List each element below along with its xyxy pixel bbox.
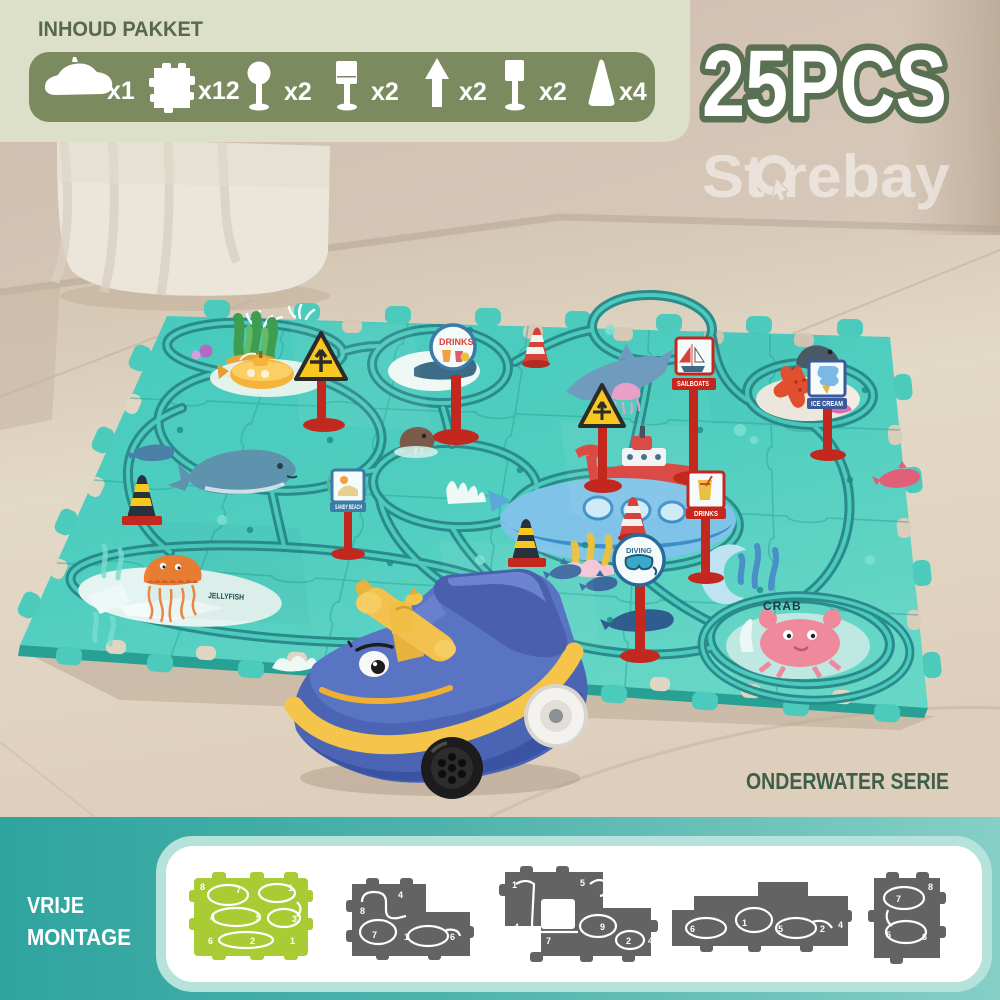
svg-text:7: 7 <box>236 885 241 895</box>
svg-text:MONTAGE: MONTAGE <box>27 924 131 950</box>
svg-text:6: 6 <box>208 936 213 946</box>
svg-text:5: 5 <box>256 913 261 923</box>
svg-text:DRINKS: DRINKS <box>694 509 718 518</box>
svg-text:1: 1 <box>288 883 293 893</box>
svg-text:ONDERWATER SERIE: ONDERWATER SERIE <box>746 768 949 794</box>
svg-text:1: 1 <box>742 918 747 928</box>
svg-text:4: 4 <box>210 913 215 923</box>
svg-text:8: 8 <box>928 882 933 892</box>
svg-text:CRAB: CRAB <box>763 599 802 613</box>
svg-text:3: 3 <box>292 914 297 924</box>
svg-text:4: 4 <box>838 920 843 930</box>
svg-text:4: 4 <box>514 922 519 932</box>
svg-text:4: 4 <box>648 936 653 946</box>
svg-text:1: 1 <box>404 932 409 942</box>
svg-text:8: 8 <box>200 882 205 892</box>
svg-text:5: 5 <box>778 924 783 934</box>
svg-text:DIVING: DIVING <box>626 546 652 555</box>
svg-text:6: 6 <box>690 924 695 934</box>
svg-text:4: 4 <box>398 890 403 900</box>
svg-text:2: 2 <box>820 924 825 934</box>
svg-text:6: 6 <box>922 932 927 942</box>
svg-text:DRINKS: DRINKS <box>439 337 474 347</box>
svg-text:x2: x2 <box>539 78 567 106</box>
svg-text:5: 5 <box>886 930 891 940</box>
svg-text:1: 1 <box>290 936 295 946</box>
svg-text:VRIJE: VRIJE <box>27 892 84 918</box>
svg-text:25PCS: 25PCS <box>702 31 947 137</box>
svg-text:x12: x12 <box>198 77 240 105</box>
svg-text:2: 2 <box>626 936 631 946</box>
svg-text:5: 5 <box>580 878 585 888</box>
svg-text:x4: x4 <box>619 78 647 106</box>
svg-text:7: 7 <box>372 930 377 940</box>
svg-text:7: 7 <box>546 936 551 946</box>
svg-text:x2: x2 <box>371 78 399 106</box>
svg-text:2: 2 <box>250 936 255 946</box>
svg-text:7: 7 <box>896 894 901 904</box>
svg-text:x1: x1 <box>107 77 135 105</box>
svg-text:6: 6 <box>450 932 455 942</box>
svg-text:St rebay: St rebay <box>702 143 951 210</box>
svg-text:x2: x2 <box>459 78 487 106</box>
svg-text:INHOUD PAKKET: INHOUD PAKKET <box>38 18 203 41</box>
svg-text:SAILBOATS: SAILBOATS <box>677 381 709 388</box>
svg-text:8: 8 <box>360 906 365 916</box>
svg-text:9: 9 <box>600 922 605 932</box>
svg-text:1: 1 <box>512 880 517 890</box>
svg-text:x2: x2 <box>284 78 312 106</box>
svg-text:SANDY BEACH: SANDY BEACH <box>335 505 362 511</box>
svg-text:ICE CREAM: ICE CREAM <box>811 401 843 408</box>
